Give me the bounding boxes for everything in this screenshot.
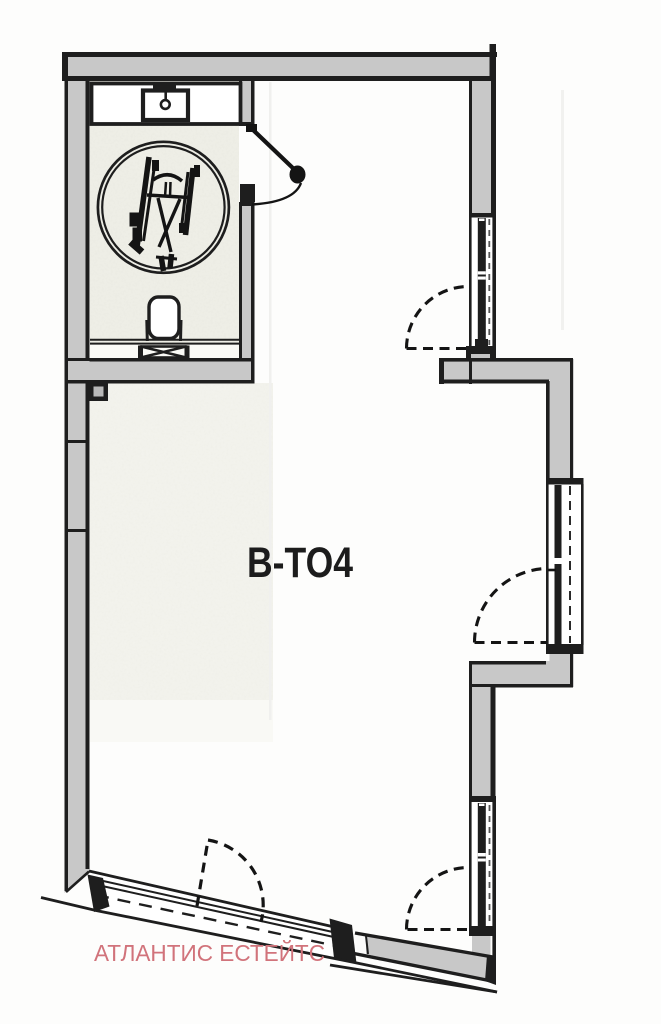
svg-text:АТЛАНТИС ЕСТЕЙТС: АТЛАНТИС ЕСТЕЙТС [94, 939, 325, 966]
svg-text:B-TO4: B-TO4 [247, 539, 353, 587]
